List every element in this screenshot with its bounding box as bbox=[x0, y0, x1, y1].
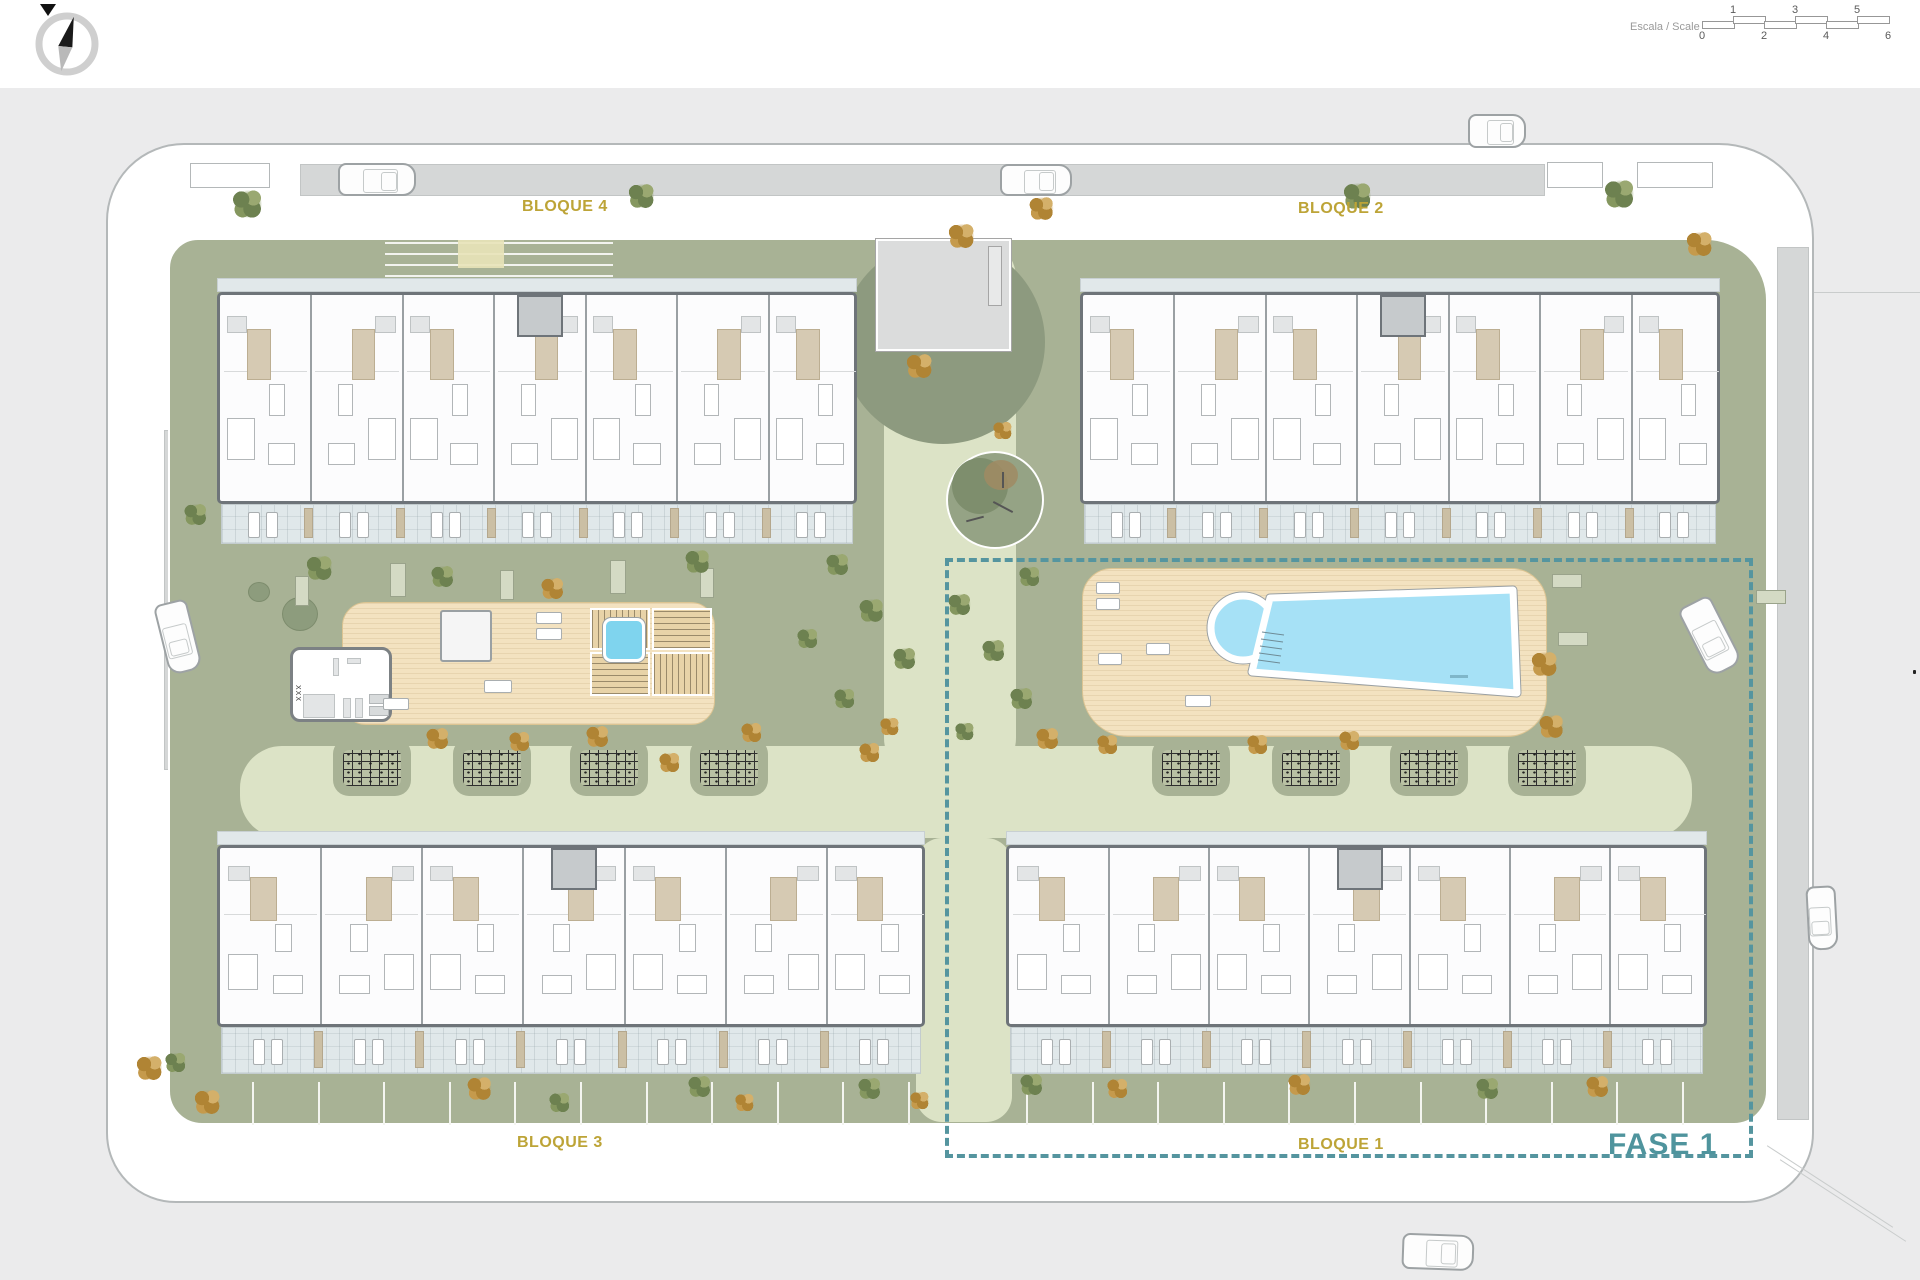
pergola bbox=[343, 750, 401, 786]
furniture bbox=[694, 443, 721, 464]
balcony-pier bbox=[1167, 508, 1176, 538]
balcony-pier bbox=[579, 508, 588, 538]
north-compass-icon bbox=[28, 4, 106, 84]
furniture bbox=[755, 924, 772, 951]
furniture bbox=[586, 954, 616, 990]
spa-pavilion bbox=[440, 610, 492, 662]
furniture bbox=[1090, 418, 1117, 460]
furniture bbox=[366, 877, 392, 921]
terrace-lounger bbox=[248, 512, 260, 538]
building-body bbox=[217, 845, 925, 1027]
tree-green bbox=[796, 628, 820, 649]
furniture bbox=[1273, 418, 1300, 460]
bush bbox=[248, 582, 270, 602]
stair-core bbox=[551, 848, 597, 890]
parking-line bbox=[514, 1082, 516, 1125]
terrace-strip bbox=[221, 1027, 921, 1074]
unit-divider bbox=[320, 848, 322, 1024]
unit-divider bbox=[1539, 295, 1541, 501]
unit-divider bbox=[1448, 295, 1450, 501]
terrace-lounger bbox=[631, 512, 643, 538]
tree-green bbox=[548, 1092, 572, 1113]
terrace-lounger bbox=[357, 512, 369, 538]
terrace-lounger bbox=[657, 1039, 669, 1065]
unit-divider bbox=[585, 295, 587, 501]
top-margin: Escala / Scale 1350246 bbox=[0, 0, 1920, 88]
tree-green bbox=[231, 189, 265, 219]
furniture bbox=[430, 954, 460, 990]
tree-autumn bbox=[508, 731, 532, 752]
furniture bbox=[1679, 443, 1706, 464]
furniture bbox=[818, 384, 834, 416]
unit-divider bbox=[1265, 295, 1267, 501]
sun-lounger bbox=[383, 698, 409, 710]
furniture bbox=[744, 975, 774, 993]
driveway-apron bbox=[190, 163, 270, 188]
furniture bbox=[430, 866, 452, 881]
unit-divider bbox=[826, 848, 828, 1024]
terrace-strip bbox=[1084, 504, 1716, 544]
car bbox=[1468, 114, 1526, 148]
tree-green bbox=[687, 1075, 713, 1098]
building-body bbox=[1080, 292, 1720, 504]
garden-bench bbox=[295, 576, 309, 606]
furniture bbox=[857, 877, 883, 921]
car bbox=[338, 163, 416, 196]
furniture bbox=[1639, 418, 1666, 460]
playground-sand bbox=[984, 460, 1018, 490]
tree-green bbox=[1603, 179, 1637, 209]
furniture bbox=[633, 866, 655, 881]
furniture bbox=[368, 418, 395, 460]
driveway-apron bbox=[1637, 162, 1713, 188]
entrance-pavement bbox=[1080, 278, 1720, 292]
scale-segment bbox=[1795, 16, 1828, 24]
playground-equipment bbox=[1002, 472, 1004, 488]
terrace-lounger bbox=[1494, 512, 1506, 538]
furniture bbox=[776, 418, 803, 460]
wood-terrace-2 bbox=[652, 608, 712, 650]
furniture bbox=[613, 329, 637, 380]
tree-green bbox=[857, 1077, 883, 1100]
furniture bbox=[384, 954, 414, 990]
furniture bbox=[339, 975, 369, 993]
unit-divider bbox=[493, 295, 495, 501]
garden-bench bbox=[390, 563, 406, 597]
pavement-patch bbox=[458, 240, 504, 268]
balcony-pier bbox=[487, 508, 496, 538]
label-bloque-2: BLOQUE 2 bbox=[1298, 200, 1384, 218]
furniture bbox=[633, 443, 660, 464]
sidewalk-right bbox=[1777, 247, 1809, 1120]
terrace-lounger bbox=[758, 1039, 770, 1065]
parking-line bbox=[646, 1082, 648, 1125]
balcony-pier bbox=[1533, 508, 1542, 538]
furniture bbox=[269, 384, 285, 416]
furniture bbox=[1215, 329, 1239, 380]
terrace-lounger bbox=[796, 512, 808, 538]
scale-segment bbox=[1764, 21, 1797, 29]
furniture bbox=[704, 384, 720, 416]
unit-divider bbox=[624, 848, 626, 1024]
balcony-pier bbox=[618, 1031, 627, 1068]
terrace-lounger bbox=[522, 512, 534, 538]
unit-divider bbox=[768, 295, 770, 501]
terrace-lounger bbox=[814, 512, 826, 538]
furniture bbox=[1498, 384, 1514, 416]
furniture bbox=[542, 975, 572, 993]
parking-line bbox=[383, 1082, 385, 1125]
furniture bbox=[1604, 316, 1624, 333]
unit-divider bbox=[1356, 295, 1358, 501]
terrace-lounger bbox=[776, 1039, 788, 1065]
unit-divider bbox=[725, 848, 727, 1024]
terrace-lounger bbox=[1476, 512, 1488, 538]
furniture bbox=[1110, 329, 1134, 380]
furniture bbox=[227, 418, 254, 460]
terrace-lounger bbox=[253, 1039, 265, 1065]
building-bloque-3 bbox=[217, 831, 925, 1074]
balcony-pier bbox=[1442, 508, 1451, 538]
site-area: XXX bbox=[0, 88, 1920, 1280]
terrace-lounger bbox=[705, 512, 717, 538]
scale-number: 3 bbox=[1792, 4, 1798, 16]
sun-lounger bbox=[536, 628, 562, 640]
sun-lounger bbox=[484, 680, 512, 693]
pergola bbox=[580, 750, 638, 786]
furniture bbox=[776, 316, 796, 333]
balcony-pier bbox=[670, 508, 679, 538]
car bbox=[1000, 164, 1072, 196]
terrace-lounger bbox=[613, 512, 625, 538]
balcony-pier bbox=[516, 1031, 525, 1068]
terrace-lounger bbox=[1294, 512, 1306, 538]
furniture bbox=[1374, 443, 1401, 464]
furniture bbox=[1597, 418, 1624, 460]
furniture bbox=[328, 443, 355, 464]
terrace-lounger bbox=[455, 1039, 467, 1065]
spa-pool bbox=[603, 618, 645, 662]
furniture bbox=[1273, 316, 1293, 333]
furniture bbox=[593, 418, 620, 460]
balcony-pier bbox=[396, 508, 405, 538]
scale-bar: Escala / Scale 1350246 bbox=[1630, 4, 1920, 48]
balcony-pier bbox=[1259, 508, 1268, 538]
furniture bbox=[1456, 418, 1483, 460]
terrace-lounger bbox=[1403, 512, 1415, 538]
scale-label: Escala / Scale bbox=[1630, 21, 1700, 33]
terrace-lounger bbox=[723, 512, 735, 538]
terrace-lounger bbox=[271, 1039, 283, 1065]
furniture bbox=[338, 384, 354, 416]
furniture bbox=[835, 866, 857, 881]
furniture bbox=[350, 924, 367, 951]
furniture bbox=[410, 316, 430, 333]
furniture bbox=[452, 384, 468, 416]
furniture bbox=[679, 924, 696, 951]
furniture bbox=[268, 443, 295, 464]
furniture bbox=[1238, 316, 1258, 333]
furniture bbox=[741, 316, 761, 333]
driveway-apron bbox=[1547, 162, 1603, 188]
tree-autumn bbox=[425, 727, 451, 750]
furniture bbox=[228, 866, 250, 881]
unit-divider bbox=[1631, 295, 1633, 501]
terrace-lounger bbox=[1202, 512, 1214, 538]
furniture bbox=[879, 975, 909, 993]
furniture bbox=[1557, 443, 1584, 464]
terrace-lounger bbox=[1220, 512, 1232, 538]
furniture bbox=[1231, 418, 1258, 460]
wood-terrace-4 bbox=[652, 652, 712, 696]
building-bloque-4 bbox=[217, 278, 857, 544]
balcony-pier bbox=[762, 508, 771, 538]
furniture bbox=[1681, 384, 1697, 416]
furniture bbox=[1293, 329, 1317, 380]
terrace-lounger bbox=[449, 512, 461, 538]
furniture bbox=[635, 384, 651, 416]
terrace-lounger bbox=[1111, 512, 1123, 538]
furniture bbox=[247, 329, 271, 380]
terrace-lounger bbox=[354, 1039, 366, 1065]
terrace-lounger bbox=[1385, 512, 1397, 538]
terrace-lounger bbox=[1129, 512, 1141, 538]
furniture bbox=[734, 418, 761, 460]
terrace-lounger bbox=[574, 1039, 586, 1065]
furniture bbox=[633, 954, 663, 990]
furniture bbox=[375, 316, 395, 333]
tree-green bbox=[825, 553, 851, 576]
tree-green bbox=[833, 688, 857, 709]
furniture bbox=[453, 877, 479, 921]
furniture bbox=[1131, 443, 1158, 464]
terrace-strip bbox=[221, 504, 853, 544]
furniture bbox=[1639, 316, 1659, 333]
furniture bbox=[477, 924, 494, 951]
furniture bbox=[594, 866, 616, 881]
furniture bbox=[1496, 443, 1523, 464]
scale-segment bbox=[1733, 16, 1766, 24]
pergola bbox=[700, 750, 758, 786]
unit-divider bbox=[310, 295, 312, 501]
label-bloque-1: BLOQUE 1 bbox=[1298, 1136, 1384, 1154]
scale-number: 0 bbox=[1699, 30, 1705, 42]
scale-number: 5 bbox=[1854, 4, 1860, 16]
terrace-lounger bbox=[675, 1039, 687, 1065]
scale-number: 6 bbox=[1885, 30, 1891, 42]
garden-bench bbox=[500, 570, 514, 600]
parking-line bbox=[777, 1082, 779, 1125]
furniture bbox=[228, 954, 258, 990]
furniture bbox=[1201, 384, 1217, 416]
furniture bbox=[275, 924, 292, 951]
scale-number: 4 bbox=[1823, 30, 1829, 42]
terrace-lounger bbox=[859, 1039, 871, 1065]
unit-divider bbox=[522, 848, 524, 1024]
terrace-lounger bbox=[556, 1039, 568, 1065]
unit-divider bbox=[402, 295, 404, 501]
terrace-lounger bbox=[1677, 512, 1689, 538]
furniture bbox=[881, 924, 898, 951]
fase-1-boundary bbox=[945, 558, 1753, 1158]
furniture bbox=[1567, 384, 1583, 416]
gym-label: XXX bbox=[294, 685, 301, 702]
tree-green bbox=[858, 598, 886, 623]
furniture bbox=[796, 329, 820, 380]
furniture bbox=[1132, 384, 1148, 416]
pergola bbox=[463, 750, 521, 786]
terrace-lounger bbox=[1312, 512, 1324, 538]
scale-number: 1 bbox=[1730, 4, 1736, 16]
furniture bbox=[797, 866, 819, 881]
terrace-lounger bbox=[372, 1039, 384, 1065]
terrace-lounger bbox=[1568, 512, 1580, 538]
furniture bbox=[410, 418, 437, 460]
unit-divider bbox=[421, 848, 423, 1024]
unit-divider bbox=[1173, 295, 1175, 501]
parking-line bbox=[842, 1082, 844, 1125]
parking-line bbox=[252, 1082, 254, 1125]
terrace-lounger bbox=[431, 512, 443, 538]
tree-autumn bbox=[740, 722, 764, 743]
furniture bbox=[352, 329, 376, 380]
furniture bbox=[1313, 443, 1340, 464]
furniture bbox=[655, 877, 681, 921]
furniture bbox=[227, 316, 247, 333]
furniture bbox=[816, 443, 843, 464]
scale-number: 2 bbox=[1761, 30, 1767, 42]
furniture bbox=[1384, 384, 1400, 416]
balcony-pier bbox=[415, 1031, 424, 1068]
unit-divider bbox=[676, 295, 678, 501]
road-edge-line bbox=[1814, 292, 1920, 293]
site-plan-page: Escala / Scale 1350246 bbox=[0, 0, 1920, 1280]
furniture bbox=[511, 443, 538, 464]
furniture bbox=[450, 443, 477, 464]
stair-core bbox=[517, 295, 563, 337]
tree-green bbox=[684, 549, 712, 574]
scale-segment bbox=[1826, 21, 1859, 29]
terrace-lounger bbox=[473, 1039, 485, 1065]
entrance-pavement bbox=[217, 278, 857, 292]
furniture bbox=[273, 975, 303, 993]
scale-segment bbox=[1857, 16, 1890, 24]
terrace-lounger bbox=[339, 512, 351, 538]
stair-core bbox=[1380, 295, 1426, 337]
tree-autumn bbox=[858, 742, 882, 763]
terrace-lounger bbox=[540, 512, 552, 538]
building-bloque-2 bbox=[1080, 278, 1720, 544]
tree-autumn bbox=[585, 725, 611, 748]
sun-lounger bbox=[536, 612, 562, 624]
furniture bbox=[551, 418, 578, 460]
tree-green bbox=[164, 1052, 188, 1073]
parking-line bbox=[449, 1082, 451, 1125]
parking-line bbox=[385, 275, 613, 277]
scale-segment bbox=[1702, 21, 1735, 29]
furniture bbox=[475, 975, 505, 993]
furniture bbox=[1090, 316, 1110, 333]
furniture bbox=[1315, 384, 1331, 416]
furniture bbox=[1191, 443, 1218, 464]
garden-bench bbox=[610, 560, 626, 594]
furniture bbox=[392, 866, 414, 881]
furniture bbox=[1659, 329, 1683, 380]
balcony-pier bbox=[1625, 508, 1634, 538]
furniture bbox=[1414, 418, 1441, 460]
furniture bbox=[250, 877, 276, 921]
garden-bench bbox=[1756, 590, 1786, 604]
furniture bbox=[521, 384, 537, 416]
building-body bbox=[217, 292, 857, 504]
plaza-detail bbox=[988, 246, 1002, 306]
furniture bbox=[788, 954, 818, 990]
furniture bbox=[430, 329, 454, 380]
tree-autumn bbox=[466, 1076, 494, 1101]
tree-green bbox=[892, 647, 918, 670]
furniture bbox=[677, 975, 707, 993]
tree-green bbox=[430, 565, 456, 588]
parking-line bbox=[318, 1082, 320, 1125]
balcony-pier bbox=[1350, 508, 1359, 538]
terrace-lounger bbox=[877, 1039, 889, 1065]
balcony-pier bbox=[304, 508, 313, 538]
furniture bbox=[1456, 316, 1476, 333]
balcony-pier bbox=[719, 1031, 728, 1068]
gym-building: XXX bbox=[290, 647, 392, 722]
furniture bbox=[553, 924, 570, 951]
road-curve-line bbox=[1780, 1159, 1906, 1242]
terrace-lounger bbox=[1586, 512, 1598, 538]
car bbox=[1805, 885, 1838, 950]
tree-autumn bbox=[658, 752, 682, 773]
furniture bbox=[835, 954, 865, 990]
map-dot bbox=[1913, 670, 1916, 674]
balcony-pier bbox=[314, 1031, 323, 1068]
furniture bbox=[1476, 329, 1500, 380]
entrance-pavement bbox=[217, 831, 925, 845]
label-bloque-4: BLOQUE 4 bbox=[522, 198, 608, 216]
label-fase-1: FASE 1 bbox=[1608, 1128, 1717, 1162]
furniture bbox=[1580, 329, 1604, 380]
car bbox=[1401, 1233, 1474, 1271]
tree-autumn bbox=[540, 577, 566, 600]
terrace-lounger bbox=[266, 512, 278, 538]
terrace-lounger bbox=[1659, 512, 1671, 538]
furniture bbox=[593, 316, 613, 333]
balcony-pier bbox=[820, 1031, 829, 1068]
parking-line bbox=[580, 1082, 582, 1125]
furniture bbox=[770, 877, 796, 921]
tree-autumn bbox=[1028, 196, 1056, 221]
tree-green bbox=[183, 503, 209, 526]
label-bloque-3: BLOQUE 3 bbox=[517, 1134, 603, 1152]
furniture bbox=[717, 329, 741, 380]
